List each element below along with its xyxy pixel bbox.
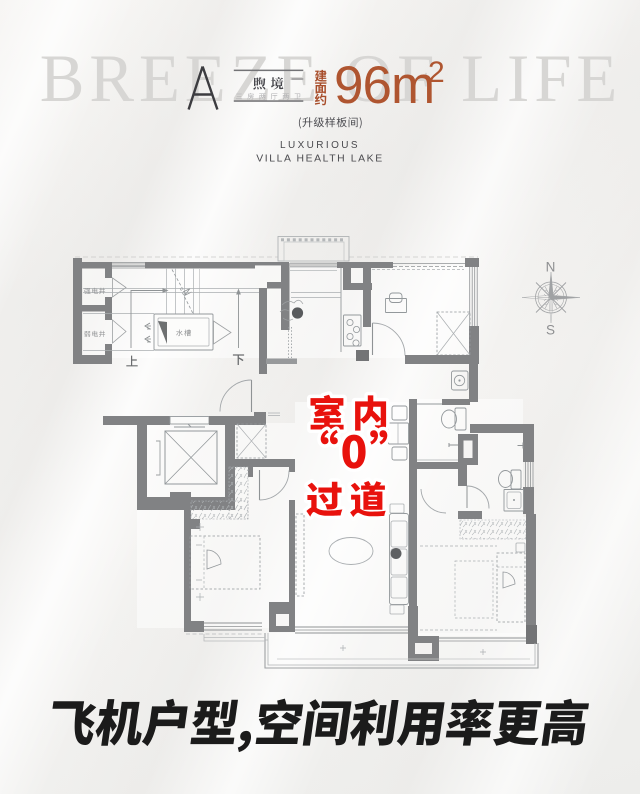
svg-text:VILLA HEALTH LAKE: VILLA HEALTH LAKE: [256, 154, 384, 165]
svg-text:N: N: [546, 260, 556, 275]
svg-text:S: S: [546, 323, 555, 338]
svg-text:96m: 96m: [334, 56, 434, 115]
svg-text:LUXURIOUS: LUXURIOUS: [280, 140, 360, 151]
svg-text:2: 2: [428, 56, 445, 89]
